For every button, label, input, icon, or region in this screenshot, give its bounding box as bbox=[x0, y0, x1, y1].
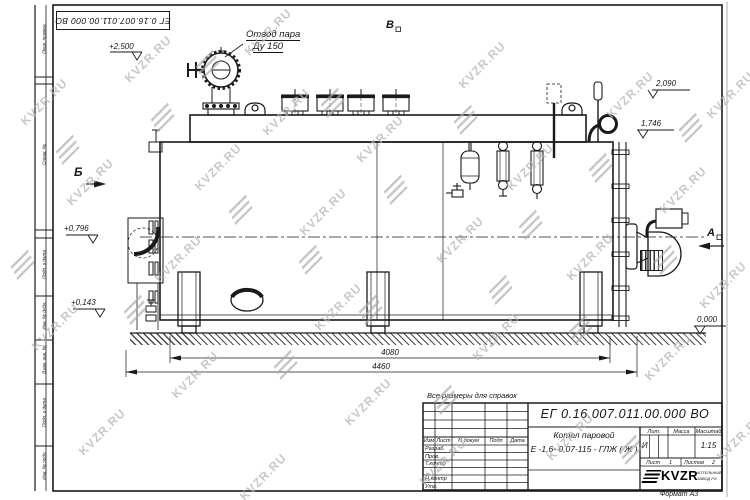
view-marker-b: Б bbox=[74, 165, 83, 179]
sheets-label: Листов bbox=[684, 460, 704, 466]
sheet-value: 1 bbox=[669, 460, 672, 466]
elevation-2500: +2,500 bbox=[109, 42, 134, 51]
steam-outlet-label-line2: Ду 150 bbox=[253, 41, 283, 53]
steam-outlet-label-line1: Отвод пара bbox=[246, 29, 300, 41]
row-utv: Утв. bbox=[425, 484, 438, 490]
kvzr-logo-text: KVZR bbox=[661, 468, 698, 483]
drawing-sheet: ЕГ 0.16.007.011.00.000 ВО Перв. примен. … bbox=[0, 0, 750, 500]
sheet-label: Лист bbox=[646, 460, 660, 466]
stamp-inv-podl: Инв. № подл. bbox=[42, 445, 47, 487]
stamp-perv-primen: Перв. примен. bbox=[42, 9, 47, 69]
elevation-2090: 2,090 bbox=[656, 79, 676, 88]
row-tkontr: Т.контр bbox=[425, 461, 446, 467]
scale-label: Масштаб bbox=[695, 429, 722, 435]
row-razrab: Разраб. bbox=[425, 446, 445, 452]
titleblock-designation: ЕГ 0.16.007.011.00.000 ВО bbox=[530, 407, 720, 421]
titleblock-name-line1: Котел паровой bbox=[530, 430, 638, 440]
col-data: Дата bbox=[507, 438, 528, 444]
col-list: Лист bbox=[435, 438, 452, 444]
row-nkontr: Н.контр bbox=[425, 476, 447, 482]
stamp-inv-dubl: Инв. № дубл. bbox=[42, 295, 47, 337]
lit-value: И bbox=[640, 441, 650, 450]
format-label: Формат А3 bbox=[629, 491, 729, 498]
reference-note: Все размеры для справок bbox=[427, 391, 517, 400]
sheets-value: 2 bbox=[712, 460, 715, 466]
stamp-sprav-n: Справ. № bbox=[42, 125, 47, 185]
lit-label: Лит. bbox=[640, 429, 668, 435]
dimension-4080-label: 4080 bbox=[368, 348, 412, 357]
elevation-0796: +0,796 bbox=[64, 224, 89, 233]
elevation-0000: 0,000 bbox=[697, 315, 717, 324]
col-izm: Изм bbox=[423, 438, 435, 444]
stamp-podp-data-1: Подп. и дата bbox=[42, 237, 47, 293]
view-marker-a: А bbox=[707, 227, 715, 239]
kvzr-logo-icon bbox=[641, 470, 661, 483]
top-designation-box: ЕГ 0.16.007.011.00.000 ВО bbox=[56, 11, 170, 30]
mass-label: Масса bbox=[668, 429, 695, 435]
scale-value: 1:15 bbox=[695, 441, 722, 450]
col-podp: Подп bbox=[485, 438, 507, 444]
elevation-0143: +0,143 bbox=[71, 298, 96, 307]
row-prov: Пров. bbox=[425, 454, 440, 460]
dimension-4460-label: 4460 bbox=[359, 362, 403, 371]
top-designation-text: ЕГ 0.16.007.011.00.000 ВО bbox=[55, 16, 171, 26]
stamp-vzam-inv: Взам. инв. № bbox=[42, 339, 47, 381]
titleblock-name-line2: Е -1,6- 0,07-115 - ГЛЖ ( Ж ) bbox=[530, 444, 638, 454]
col-dokum: N докум bbox=[452, 438, 485, 444]
kvzr-logo-sub1: КОТЕЛЬНЫЙ bbox=[697, 471, 723, 475]
view-marker-v: В bbox=[386, 19, 394, 31]
elevation-1746: 1,746 bbox=[641, 119, 661, 128]
kvzr-logo-sub2: ЗАВОД РЭ bbox=[697, 477, 723, 481]
stamp-podp-data-2: Подп. и дата bbox=[42, 385, 47, 441]
